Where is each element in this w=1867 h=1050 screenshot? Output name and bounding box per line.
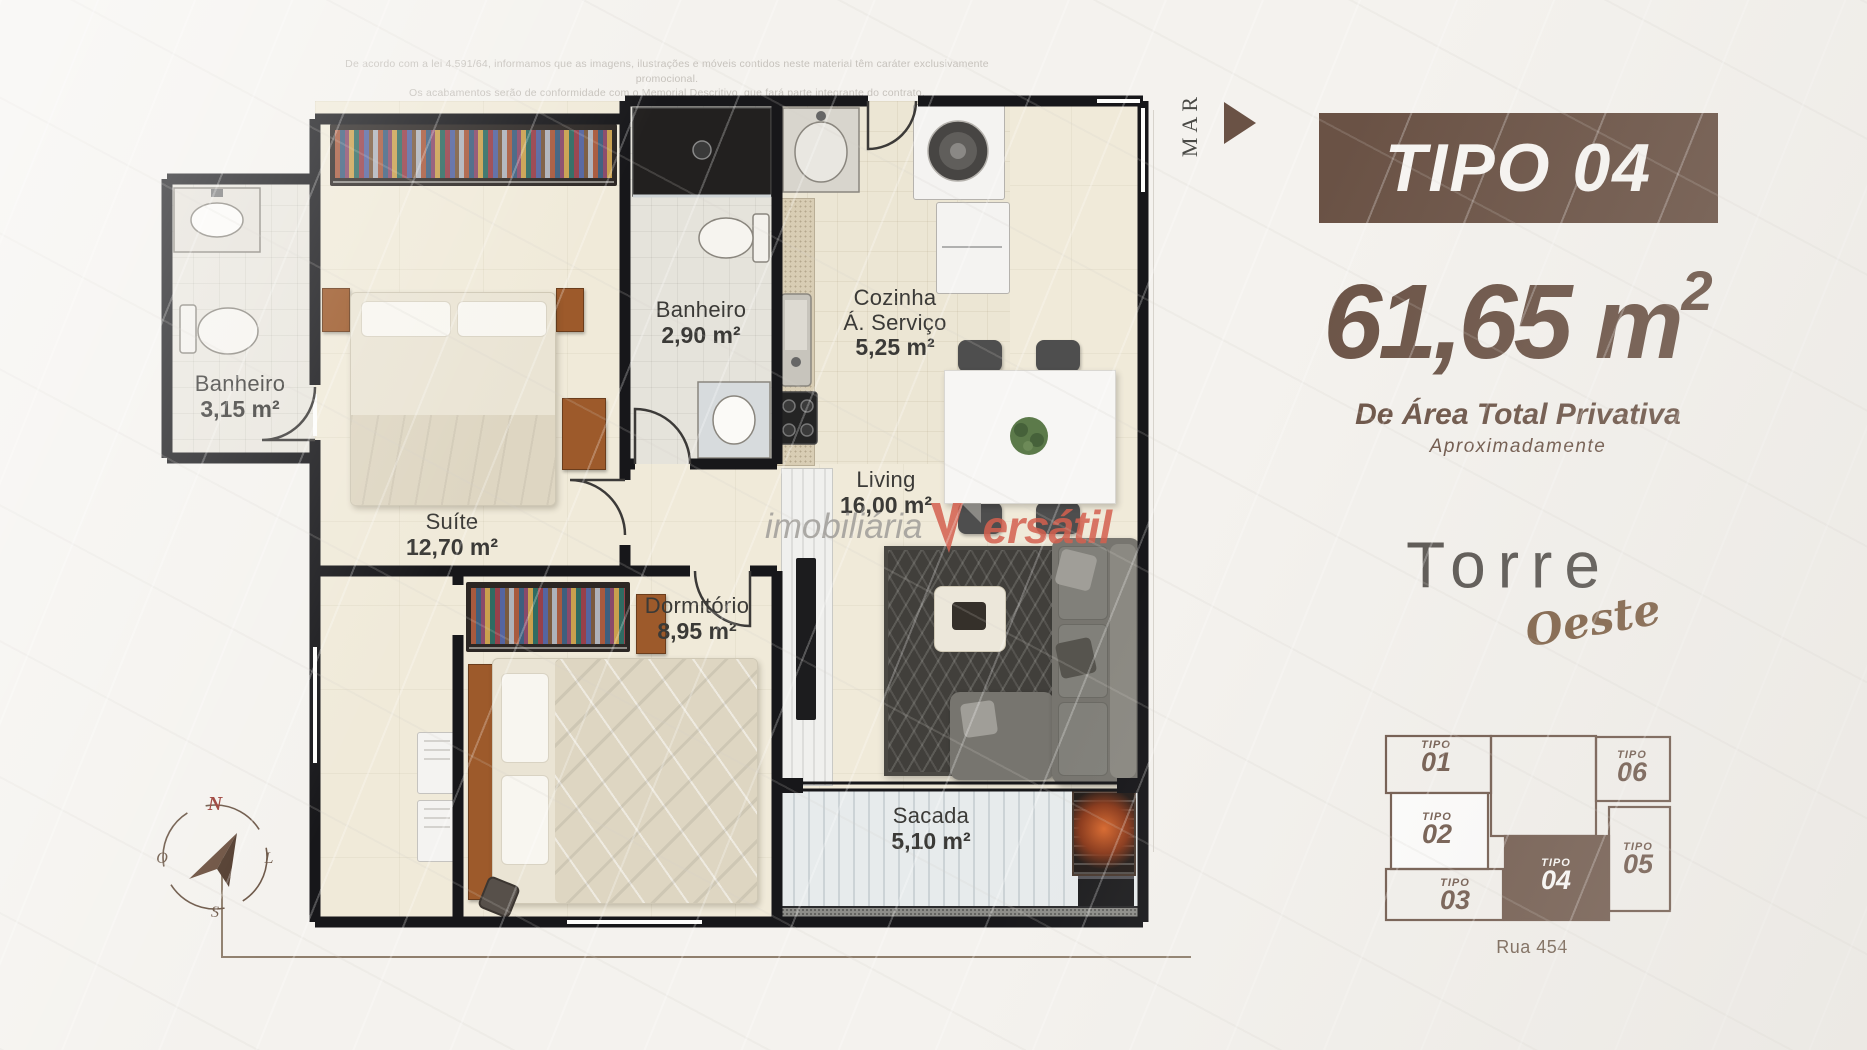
total-area-display: 61,65m2: [1218, 258, 1818, 383]
dining-plant: [1010, 417, 1048, 455]
label-banheiro-suite: Banheiro 3,15 m²: [165, 372, 315, 422]
street-label: Rua 454: [1452, 937, 1612, 958]
room-area: 8,95 m²: [622, 619, 772, 645]
area-unit: m: [1595, 268, 1682, 380]
room-area: 5,25 m²: [820, 335, 970, 361]
area-exponent: 2: [1682, 259, 1713, 322]
social-bathroom-fixtures: [633, 108, 771, 458]
room-area: 12,70 m²: [352, 535, 552, 561]
compass-north: N: [207, 795, 224, 815]
unit-type-label: TIPO 04: [1385, 129, 1652, 207]
keyplan-unit-06: TIPO 06: [1602, 750, 1662, 786]
floorplan-poster: De acordo com a lei 4.591/64, informamos…: [0, 0, 1867, 1050]
unit-type-badge: TIPO 04: [1319, 113, 1718, 223]
room-area: 5,10 m²: [856, 829, 1006, 855]
compass-south: S: [211, 904, 219, 920]
room-name: Cozinha: [820, 286, 970, 311]
room-area: 2,90 m²: [626, 323, 776, 349]
area-value: 61,65: [1323, 263, 1568, 381]
room-name: Banheiro: [626, 298, 776, 323]
sea-direction-arrow-icon: [1224, 102, 1256, 144]
room-name: Sacada: [856, 804, 1006, 829]
kitchen-fixtures: [779, 108, 1002, 444]
room-name: Living: [811, 468, 961, 493]
agency-watermark: imobiliária ersátil: [758, 496, 1118, 558]
room-area: 3,15 m²: [165, 397, 315, 423]
label-dormitorio: Dormitório 8,95 m²: [622, 594, 772, 644]
keyplan-unit-03: TIPO 03: [1425, 878, 1485, 914]
compass-rose-icon: N O L S: [155, 795, 280, 920]
room-name: Banheiro: [165, 372, 315, 397]
area-note: Aproximadamente: [1318, 436, 1718, 458]
versatil-v-logo-icon: [929, 499, 981, 555]
keyplan-unit-02: TIPO 02: [1407, 812, 1467, 848]
room-name: Suíte: [352, 510, 552, 535]
suite-bathroom-fixtures: [174, 188, 260, 354]
label-cozinha: Cozinha Á. Serviço 5,25 m²: [820, 286, 970, 361]
keyplan-unit-01: TIPO 01: [1406, 740, 1466, 776]
sea-direction-label: MAR: [1177, 92, 1203, 157]
watermark-brand: ersátil: [983, 500, 1112, 554]
keyplan-unit-04-highlighted: TIPO 04: [1526, 858, 1586, 894]
compass-west: O: [156, 850, 168, 867]
keyplan-unit-05: TIPO 05: [1608, 842, 1668, 878]
watermark-prefix: imobiliária: [765, 507, 923, 547]
label-suite: Suíte 12,70 m²: [352, 510, 552, 560]
room-name: Dormitório: [622, 594, 772, 619]
balcony-slider: [777, 778, 1143, 793]
label-banheiro-social: Banheiro 2,90 m²: [626, 298, 776, 348]
area-description: De Área Total Privativa: [1318, 398, 1718, 432]
label-sacada: Sacada 5,10 m²: [856, 804, 1006, 854]
room-name: Á. Serviço: [820, 311, 970, 336]
compass-east: L: [264, 850, 274, 867]
